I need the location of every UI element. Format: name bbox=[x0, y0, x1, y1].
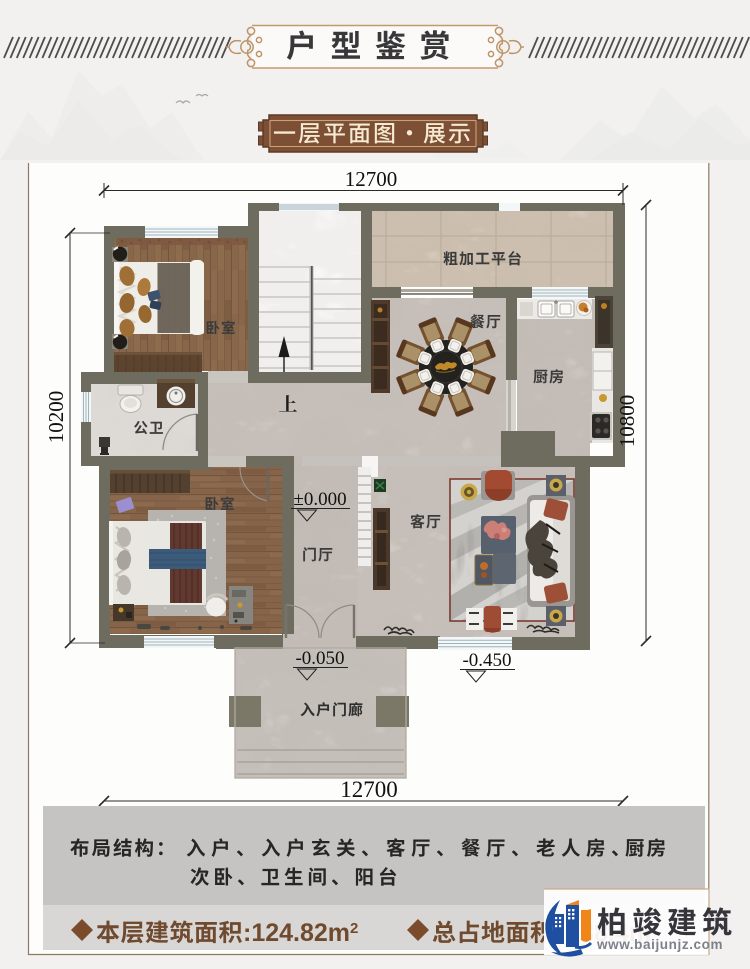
svg-text:10200: 10200 bbox=[44, 391, 68, 444]
svg-text:www.baijunjz.com: www.baijunjz.com bbox=[596, 937, 723, 952]
svg-text:-0.450: -0.450 bbox=[462, 650, 511, 671]
svg-text:12700: 12700 bbox=[345, 167, 398, 191]
svg-text:10800: 10800 bbox=[615, 395, 639, 448]
svg-text::124.82m2: :124.82m2 bbox=[243, 919, 358, 947]
svg-text:±0.000: ±0.000 bbox=[293, 489, 346, 510]
svg-text:12700: 12700 bbox=[340, 777, 398, 802]
svg-text:-0.050: -0.050 bbox=[295, 648, 344, 669]
